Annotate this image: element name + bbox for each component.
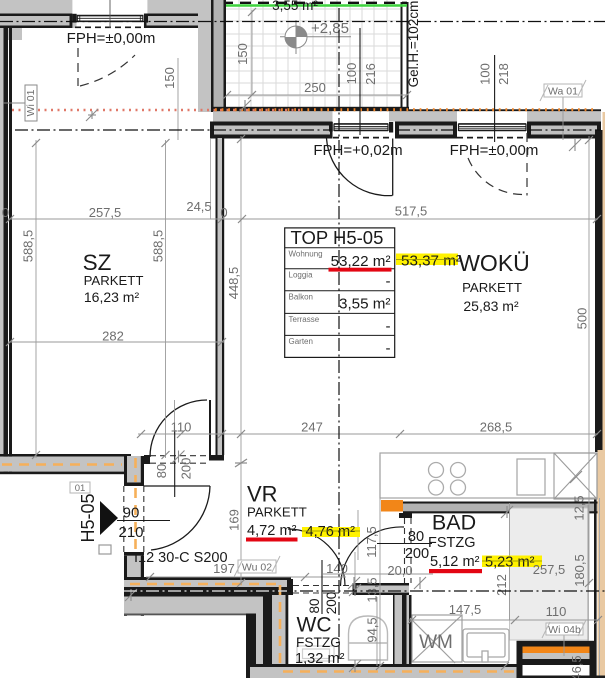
svg-text:53,37 m²: 53,37 m² [401,253,461,270]
svg-text:Wa 01: Wa 01 [548,86,578,98]
svg-text:WC: WC [297,614,332,637]
svg-text:218: 218 [496,63,511,85]
svg-text:FSTZG: FSTZG [428,535,476,551]
svg-text:PARKETT: PARKETT [84,273,144,288]
svg-text:-: - [385,340,390,357]
svg-text:Wohnung: Wohnung [289,250,323,259]
svg-text:448,5: 448,5 [226,267,241,300]
svg-text:257,5: 257,5 [89,205,122,220]
svg-text:Loggia: Loggia [289,271,314,280]
svg-text:01: 01 [75,483,86,494]
svg-text:110: 110 [171,420,192,435]
svg-text:SZ: SZ [83,250,112,275]
svg-text:150: 150 [162,67,177,89]
svg-text:Wi 04b: Wi 04b [548,624,581,636]
svg-text:200: 200 [324,592,339,615]
svg-text:Wi 01: Wi 01 [25,89,37,116]
svg-text:20,0: 20,0 [387,563,412,578]
svg-text:4,76 m²: 4,76 m² [306,524,356,540]
svg-text:PARKETT: PARKETT [247,505,307,520]
svg-text:25,83 m²: 25,83 m² [463,298,519,314]
svg-text:80: 80 [307,598,322,613]
svg-text:TOP H5-05: TOP H5-05 [291,227,384,248]
svg-text:80: 80 [408,529,424,545]
svg-text:12,5: 12,5 [572,495,587,520]
svg-text:247: 247 [301,420,323,435]
svg-text:268,5: 268,5 [480,420,513,435]
svg-text:200: 200 [405,546,429,562]
svg-text:Gel.H.=102cm: Gel.H.=102cm [406,1,421,88]
svg-text:H5-05: H5-05 [78,493,98,542]
svg-text:200: 200 [179,458,194,480]
svg-text:282: 282 [102,329,124,344]
svg-text:3,55 m²: 3,55 m² [339,296,391,313]
svg-text:FSTZG: FSTZG [296,635,341,650]
svg-text:-: - [385,318,390,335]
svg-text:257,5: 257,5 [533,562,566,577]
svg-text:FPH=±0,00m: FPH=±0,00m [450,142,539,159]
svg-text:212: 212 [494,574,509,596]
svg-text:210: 210 [118,524,143,541]
svg-text:180,5: 180,5 [572,554,587,587]
svg-text:90: 90 [123,505,140,522]
svg-text:80: 80 [154,464,169,478]
svg-text:140: 140 [326,561,348,576]
svg-text:Wu 02: Wu 02 [242,562,272,574]
svg-text:500: 500 [575,308,590,330]
svg-text:FPH=±0,00m: FPH=±0,00m [67,30,156,47]
svg-text:Garten: Garten [289,337,313,346]
svg-text:Balkon: Balkon [289,293,313,302]
svg-text:197: 197 [213,561,235,576]
svg-text:+2,85: +2,85 [311,20,349,37]
svg-text:VR: VR [247,482,278,507]
svg-text:-: - [385,273,390,290]
svg-text:110: 110 [546,604,567,619]
svg-text:94,5: 94,5 [365,617,380,642]
svg-text:WM: WM [419,632,453,653]
svg-text:147,5: 147,5 [449,602,482,617]
svg-text:46,5: 46,5 [569,655,584,678]
svg-text:16,23 m²: 16,23 m² [84,289,140,305]
svg-text:250: 250 [304,80,326,95]
svg-text:3,55 m²: 3,55 m² [272,0,318,13]
svg-text:216: 216 [363,63,378,85]
svg-text:24,5: 24,5 [186,199,211,214]
svg-text:169: 169 [227,509,242,531]
svg-text:100: 100 [344,63,359,85]
svg-text:0: 0 [220,205,227,220]
svg-text:0: 0 [2,205,9,220]
svg-text:5,23 m²: 5,23 m² [485,555,535,571]
svg-text:WOKÜ: WOKÜ [458,250,530,276]
svg-text:588,5: 588,5 [21,230,36,263]
svg-text:13,5: 13,5 [365,577,380,602]
svg-text:588,5: 588,5 [151,230,166,263]
svg-text:Terrasse: Terrasse [289,315,320,324]
svg-text:4,72 m²: 4,72 m² [247,523,297,539]
svg-text:5,12 m²: 5,12 m² [430,554,480,570]
svg-text:517,5: 517,5 [395,204,428,219]
svg-text:BAD: BAD [432,511,476,535]
svg-text:117,5: 117,5 [364,526,379,558]
svg-text:100: 100 [478,63,493,85]
svg-text:150: 150 [235,43,250,65]
svg-text:PARKETT: PARKETT [462,280,522,295]
svg-text:1,32 m²: 1,32 m² [295,651,345,667]
